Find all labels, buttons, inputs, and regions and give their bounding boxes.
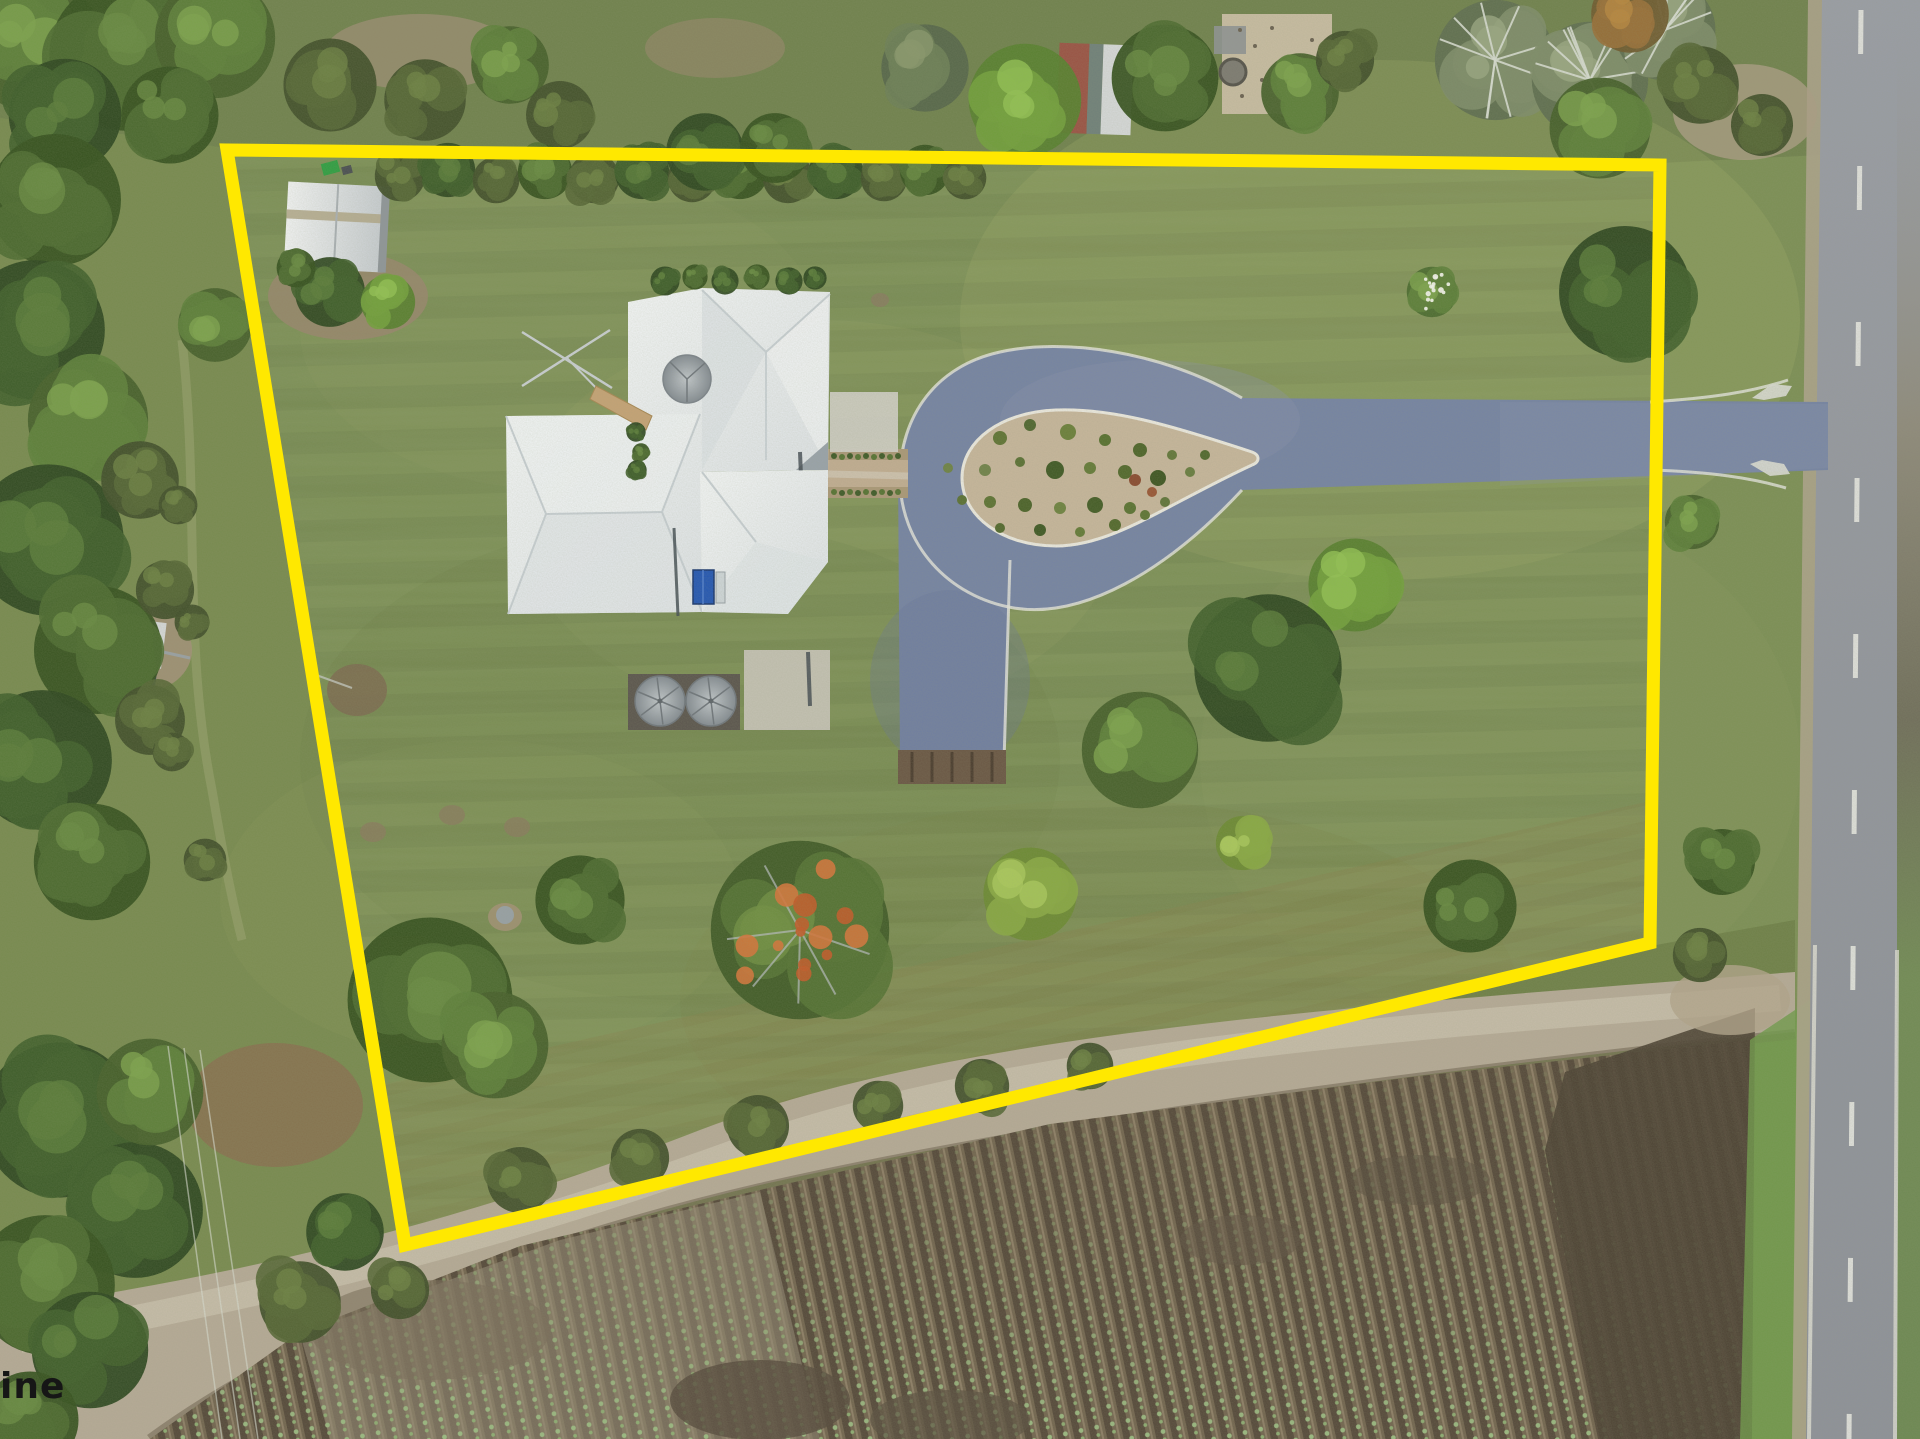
aerial-photo: ine <box>0 0 1920 1439</box>
watermark-text: ine <box>0 1366 65 1407</box>
photo-grain-texture <box>0 0 1920 1439</box>
aerial-photo-canvas <box>0 0 1920 1439</box>
